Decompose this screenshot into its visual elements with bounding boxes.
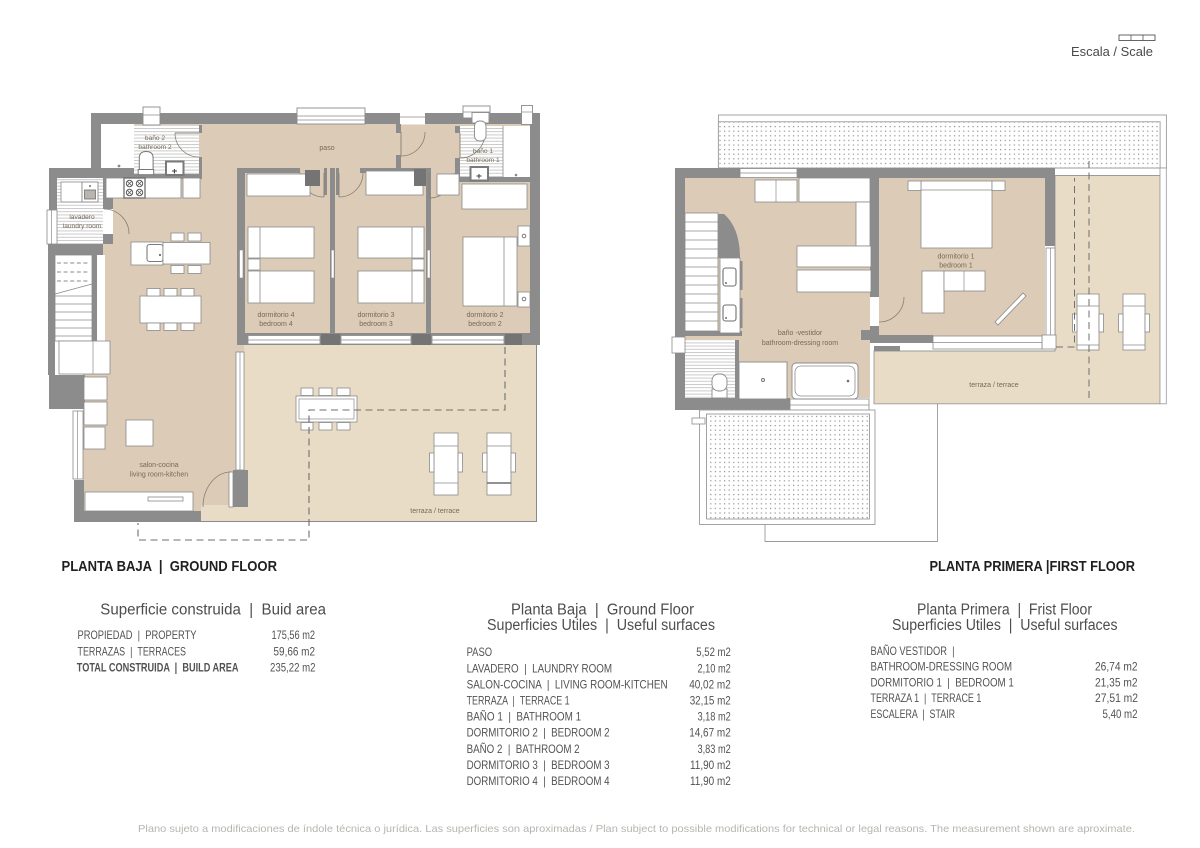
svg-text:TERRAZA 1 | TERRACE 1: TERRAZA 1 | TERRACE 1 [871,691,982,705]
svg-text:27,51 m2: 27,51 m2 [1095,691,1138,705]
svg-text:2,10 m2: 2,10 m2 [698,661,732,675]
svg-text:11,90 m2: 11,90 m2 [690,758,731,772]
svg-text:TERRAZAS | TERRACES: TERRAZAS | TERRACES [78,644,187,658]
svg-text:bedroom 1: bedroom 1 [939,263,973,270]
svg-text:Planta Baja | Ground Floor: Planta Baja | Ground Floor [511,602,694,619]
svg-text:DORMITORIO 3 | BEDROOM 3: DORMITORIO 3 | BEDROOM 3 [467,758,610,772]
svg-text:baño -vestidor: baño -vestidor [778,330,823,337]
svg-text:11,90 m2: 11,90 m2 [690,774,731,788]
svg-text:lavadero: lavadero [69,214,95,221]
svg-text:3,83 m2: 3,83 m2 [698,742,732,756]
svg-text:14,67 m2: 14,67 m2 [689,726,731,740]
svg-text:paso: paso [319,145,334,152]
svg-text:235,22 m2: 235,22 m2 [270,661,316,675]
svg-text:175,56 m2: 175,56 m2 [272,628,316,642]
svg-text:5,52 m2: 5,52 m2 [696,645,731,659]
svg-text:ESCALERA | STAIR: ESCALERA | STAIR [871,707,956,721]
svg-text:5,40 m2: 5,40 m2 [1103,707,1138,721]
svg-text:baño 2: baño 2 [145,135,166,142]
svg-text:PASO: PASO [467,645,493,659]
svg-text:PLANTA PRIMERA |FIRST FLOOR: PLANTA PRIMERA |FIRST FLOOR [930,558,1136,575]
svg-text:dormitorio 3: dormitorio 3 [358,312,395,319]
svg-text:bathroom-dressing room: bathroom-dressing room [762,340,838,347]
svg-text:PROPIEDAD | PROPERTY: PROPIEDAD | PROPERTY [78,628,197,642]
svg-text:bedroom 4: bedroom 4 [259,321,293,328]
svg-text:dormitorio 2: dormitorio 2 [467,312,504,319]
svg-text:DORMITORIO 1 | BEDROOM 1: DORMITORIO 1 | BEDROOM 1 [871,675,1015,689]
svg-text:59,66 m2: 59,66 m2 [274,644,316,658]
svg-text:BAÑO 1 | BATHROOM 1: BAÑO 1 | BATHROOM 1 [467,710,582,724]
svg-text:TOTAL CONSTRUIDA | BUILD ARE: TOTAL CONSTRUIDA | BUILD AREA [77,661,239,675]
svg-text:Superficies Utiles | Useful: Superficies Utiles | Useful surfaces [892,617,1118,634]
svg-text:BATHROOM-DRESSING ROOM: BATHROOM-DRESSING ROOM [871,660,1013,674]
svg-text:bedroom 2: bedroom 2 [468,321,502,328]
svg-text:LAVADERO | LAUNDRY ROOM: LAVADERO | LAUNDRY ROOM [467,661,612,675]
svg-text:dormitorio 1: dormitorio 1 [938,254,975,261]
svg-text:Planta Primera | Frist Floor: Planta Primera | Frist Floor [917,602,1092,619]
svg-text:Superficie construida | Buid: Superficie construida | Buid area [100,602,326,619]
svg-text:dormitorio 4: dormitorio 4 [258,312,295,319]
svg-text:BAÑO 2 | BATHROOM 2: BAÑO 2 | BATHROOM 2 [467,742,580,756]
svg-text:terraza / terrace: terraza / terrace [969,382,1019,389]
svg-text:living room-kitchen: living room-kitchen [130,472,188,479]
svg-text:TERRAZA | TERRACE 1: TERRAZA | TERRACE 1 [467,694,570,708]
svg-text:26,74 m2: 26,74 m2 [1095,660,1138,674]
svg-text:terraza / terrace: terraza / terrace [410,508,460,515]
svg-text:Superficies Utiles | Useful: Superficies Utiles | Useful surfaces [487,617,715,634]
svg-text:bathroom 1: bathroom 1 [466,157,500,164]
svg-text:3,18 m2: 3,18 m2 [698,710,732,724]
svg-text:Escala / Scale: Escala / Scale [1071,45,1153,59]
svg-text:32,15 m2: 32,15 m2 [690,694,731,708]
svg-text:BAÑO VESTIDOR |: BAÑO VESTIDOR | [871,644,955,658]
svg-text:bathroom 2: bathroom 2 [138,144,172,151]
svg-text:salon-cocina: salon-cocina [139,462,178,469]
svg-text:21,35 m2: 21,35 m2 [1095,675,1138,689]
svg-text:DORMITORIO 2 | BEDROOM 2: DORMITORIO 2 | BEDROOM 2 [467,726,610,740]
svg-text:40,02 m2: 40,02 m2 [689,677,731,691]
svg-text:SALON-COCINA | LIVING ROOM-K: SALON-COCINA | LIVING ROOM-KITCHEN [467,677,668,691]
svg-text:DORMITORIO 4 | BEDROOM 4: DORMITORIO 4 | BEDROOM 4 [467,774,610,788]
svg-text:bedroom 3: bedroom 3 [359,321,393,328]
svg-text:laundry room: laundry room [63,223,102,230]
svg-text:Plano sujeto a modificaciones: Plano sujeto a modificaciones de índole … [138,823,1135,835]
svg-text:PLANTA BAJA | GROUND FLOOR: PLANTA BAJA | GROUND FLOOR [62,558,278,575]
svg-text:baño 1: baño 1 [473,148,494,155]
